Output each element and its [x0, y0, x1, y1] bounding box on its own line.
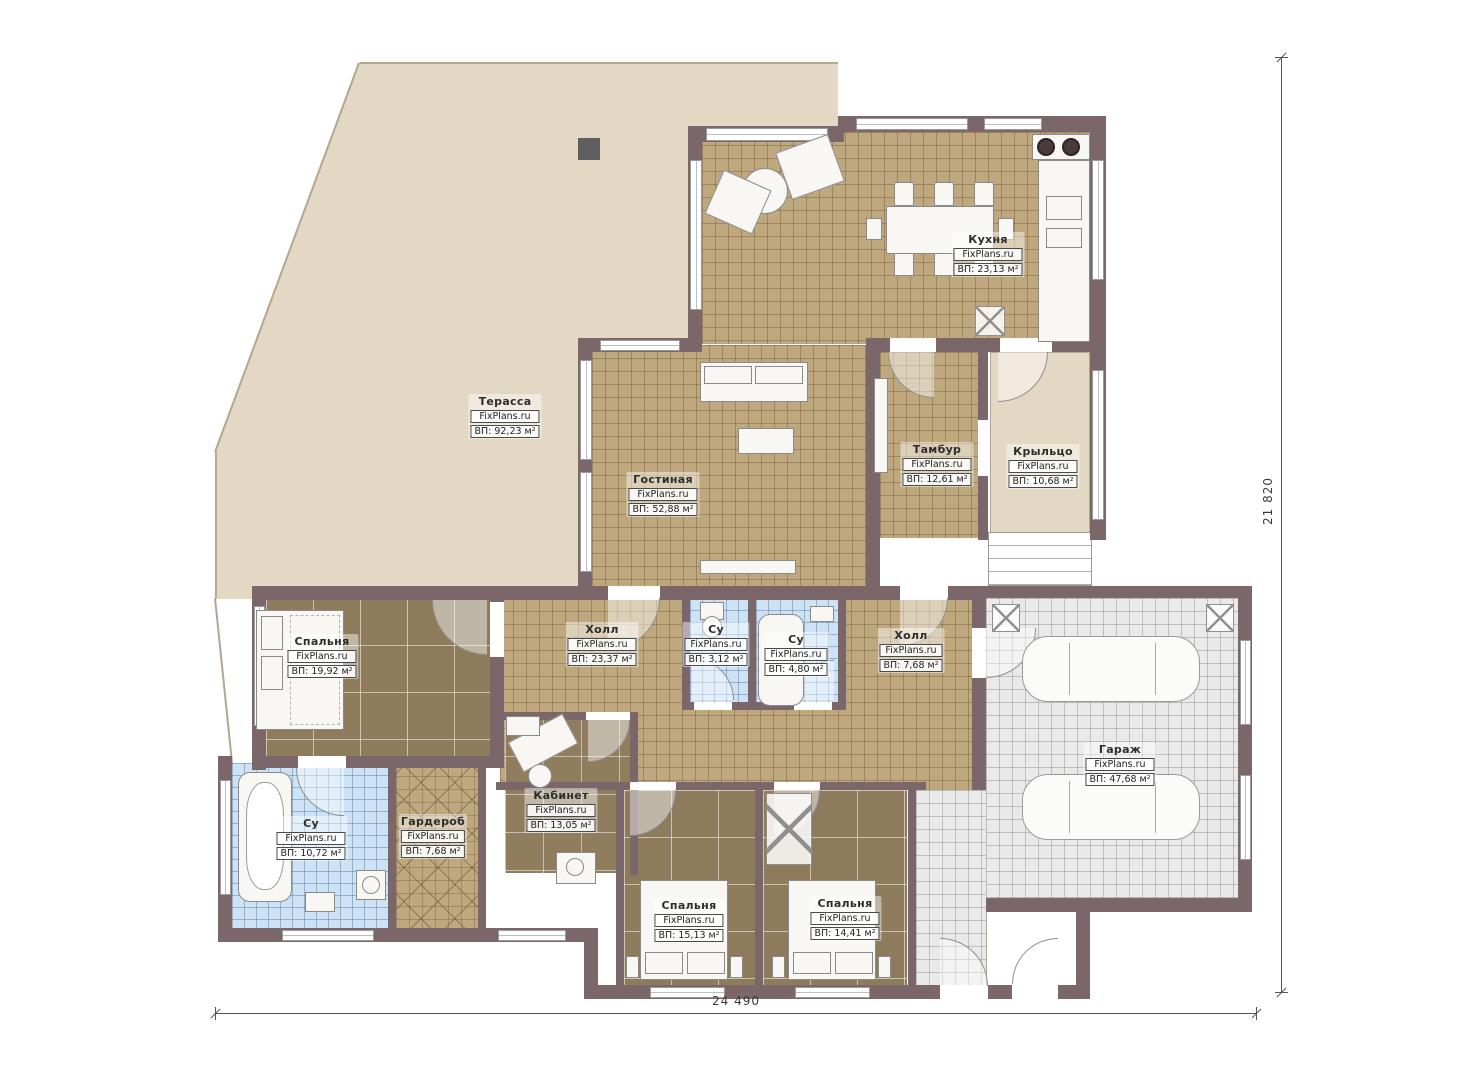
coffee-table-icon: [738, 428, 794, 454]
window: [282, 930, 374, 941]
room-label-bedroom-left: Спальня FixPlans.ru ВП: 19,92 м²: [285, 634, 358, 679]
washer-drum: [362, 876, 380, 894]
wall: [388, 760, 396, 930]
room-site: FixPlans.ru: [684, 638, 747, 651]
door-opening: [694, 702, 732, 710]
room-area: ВП: 15,13 м²: [654, 929, 723, 942]
porch-steps: [988, 532, 1092, 586]
wall: [1076, 898, 1090, 998]
room-label-wc-small: Су FixPlans.ru ВП: 3,12 м²: [682, 622, 749, 667]
garage-door: [1240, 640, 1251, 725]
garage-corner-mark: [1206, 604, 1234, 632]
room-area: ВП: 12,61 м²: [902, 473, 971, 486]
cabinet-icon: [506, 716, 540, 736]
room-label-bedroom-b1: Спальня FixPlans.ru ВП: 15,13 м²: [652, 898, 725, 943]
sofa-cushion: [704, 366, 752, 384]
dimension-bottom: 24 490: [215, 990, 1257, 1020]
room-area: ВП: 10,68 м²: [1008, 475, 1077, 488]
wall: [838, 590, 846, 710]
room-site: FixPlans.ru: [654, 914, 723, 927]
window: [984, 118, 1042, 130]
room-site: FixPlans.ru: [764, 648, 827, 661]
door-opening: [890, 338, 936, 352]
terrace-column: [578, 138, 600, 160]
room-site: FixPlans.ru: [276, 832, 345, 845]
room-site: FixPlans.ru: [567, 638, 636, 651]
door-opening: [298, 756, 346, 768]
door-opening: [774, 782, 820, 790]
room-name: Терасса: [470, 395, 539, 408]
dimension-value-right: 21 820: [1261, 477, 1275, 525]
tv-stand-icon: [700, 560, 796, 574]
room-label-tambour: Тамбур FixPlans.ru ВП: 12,61 м²: [900, 442, 973, 487]
dimension-right: 21 820: [1262, 57, 1302, 997]
sofa-cushion: [755, 366, 803, 384]
window: [580, 472, 592, 572]
dimension-line: [215, 1013, 1257, 1014]
car-rear-window: [1155, 781, 1156, 833]
garage-door: [1240, 775, 1251, 860]
pillow-icon: [645, 952, 683, 974]
room-name: Кухня: [953, 233, 1022, 246]
room-site: FixPlans.ru: [879, 644, 942, 657]
room-area: ВП: 19,92 м²: [287, 665, 356, 678]
garage-corner-mark: [992, 604, 1020, 632]
room-name: Холл: [879, 629, 942, 642]
office-chair-icon: [528, 764, 552, 788]
wall: [252, 756, 496, 768]
terrace-edge-top: [360, 62, 838, 64]
room-site: FixPlans.ru: [1085, 758, 1154, 771]
room-area: ВП: 14,41 м²: [810, 927, 879, 940]
room-label-garage: Гараж FixPlans.ru ВП: 47,68 м²: [1083, 742, 1156, 787]
burner-icon: [1037, 138, 1055, 156]
room-name: Су: [276, 817, 345, 830]
window: [600, 340, 680, 351]
car-icon: [1022, 636, 1200, 702]
chair-icon: [934, 182, 954, 206]
room-name: Спальня: [287, 635, 356, 648]
room-site: FixPlans.ru: [287, 650, 356, 663]
window: [220, 780, 231, 895]
kitchen-sink-icon: [1046, 196, 1082, 220]
terrace-edge-wedge: [215, 598, 234, 763]
closet-icon: [874, 378, 888, 473]
window: [690, 160, 702, 310]
room-area: ВП: 10,72 м²: [276, 847, 345, 860]
wall: [908, 782, 916, 985]
nightstand-icon: [626, 956, 639, 978]
window: [498, 930, 566, 941]
room-name: Гардероб: [401, 815, 465, 828]
room-site: FixPlans.ru: [953, 248, 1022, 261]
chair-icon: [894, 252, 914, 276]
window: [1092, 160, 1104, 280]
basin-icon: [566, 858, 584, 876]
door-opening: [586, 712, 630, 720]
room-site: FixPlans.ru: [810, 912, 879, 925]
car-rear-window: [1155, 643, 1156, 695]
room-label-terrace: Терасса FixPlans.ru ВП: 92,23 м²: [468, 394, 541, 439]
sink-icon: [305, 892, 335, 912]
room-site: FixPlans.ru: [526, 804, 595, 817]
room-area: ВП: 23,37 м²: [567, 653, 636, 666]
room-area: ВП: 23,13 м²: [953, 263, 1022, 276]
wall: [986, 898, 1252, 912]
car-windshield: [1069, 643, 1070, 695]
wall: [755, 782, 763, 985]
kitchen-appliance: [1046, 228, 1082, 248]
wardrobe-x-icon: [766, 793, 812, 865]
door-opening: [630, 782, 676, 790]
window: [706, 128, 828, 141]
room-label-bedroom-b2: Спальня FixPlans.ru ВП: 14,41 м²: [808, 896, 881, 941]
room-name: Крыльцо: [1008, 445, 1077, 458]
chair-icon: [866, 218, 882, 240]
wall: [972, 586, 986, 790]
room-area: ВП: 92,23 м²: [470, 425, 539, 438]
terrace-edge-left: [215, 452, 217, 598]
room-area: ВП: 13,05 м²: [526, 819, 595, 832]
room-name: Кабинет: [526, 789, 595, 802]
window: [856, 118, 968, 130]
room-site: FixPlans.ru: [470, 410, 539, 423]
dimension-line: [1281, 57, 1282, 993]
room-label-wc-big: Су FixPlans.ru ВП: 4,80 м²: [762, 632, 829, 677]
pillow-icon: [261, 616, 283, 650]
room-label-hall-right: Холл FixPlans.ru ВП: 7,68 м²: [877, 628, 944, 673]
door-opening: [978, 420, 988, 476]
room-label-office: Кабинет FixPlans.ru ВП: 13,05 м²: [524, 788, 597, 833]
room-area: ВП: 7,68 м²: [879, 659, 942, 672]
wall: [1238, 586, 1252, 912]
room-name: Гараж: [1085, 743, 1154, 756]
door-opening: [972, 628, 986, 678]
room-label-wardrobe: Гардероб FixPlans.ru ВП: 7,68 м²: [399, 814, 467, 859]
room-label-porch: Крыльцо FixPlans.ru ВП: 10,68 м²: [1006, 444, 1079, 489]
kitchen-counter: [1038, 160, 1090, 342]
room-label-kitchen: Кухня FixPlans.ru ВП: 23,13 м²: [951, 232, 1024, 277]
room-label-hall-left: Холл FixPlans.ru ВП: 23,37 м²: [565, 622, 638, 667]
dimension-value-bottom: 24 490: [215, 994, 1257, 1008]
room-name: Су: [684, 623, 747, 636]
room-area: ВП: 4,80 м²: [764, 663, 827, 676]
pillow-icon: [687, 952, 725, 974]
window: [580, 360, 592, 460]
room-name: Спальня: [654, 899, 723, 912]
room-area: ВП: 3,12 м²: [684, 653, 747, 666]
nightstand-icon: [730, 956, 743, 978]
window: [1092, 370, 1104, 520]
floor-plan: Терасса FixPlans.ru ВП: 92,23 м² Кухня F…: [0, 0, 1474, 1080]
pillow-icon: [793, 952, 831, 974]
door-opening: [490, 602, 504, 657]
wall: [616, 782, 624, 985]
room-site: FixPlans.ru: [902, 458, 971, 471]
sink-icon: [810, 606, 834, 622]
burner-icon: [1062, 138, 1080, 156]
room-name: Су: [764, 633, 827, 646]
room-area: ВП: 47,68 м²: [1085, 773, 1154, 786]
room-name: Гостиная: [628, 473, 697, 486]
room-site: FixPlans.ru: [628, 488, 697, 501]
room-area: ВП: 7,68 м²: [401, 845, 465, 858]
chair-icon: [974, 182, 994, 206]
pillow-icon: [835, 952, 873, 974]
wall: [986, 586, 1250, 598]
room-name: Холл: [567, 623, 636, 636]
room-name: Спальня: [810, 897, 879, 910]
chair-icon: [894, 182, 914, 206]
wall: [478, 760, 486, 930]
room-label-bath-left: Су FixPlans.ru ВП: 10,72 м²: [274, 816, 347, 861]
nightstand-icon: [878, 956, 891, 978]
car-windshield: [1069, 781, 1070, 833]
room-site: FixPlans.ru: [401, 830, 465, 843]
room-label-living: Гостиная FixPlans.ru ВП: 52,88 м²: [626, 472, 699, 517]
appliance-x-icon: [975, 306, 1005, 336]
room-site: FixPlans.ru: [1008, 460, 1077, 473]
nightstand-icon: [772, 956, 785, 978]
pillow-icon: [261, 656, 283, 690]
room-area: ВП: 52,88 м²: [628, 503, 697, 516]
room-name: Тамбур: [902, 443, 971, 456]
